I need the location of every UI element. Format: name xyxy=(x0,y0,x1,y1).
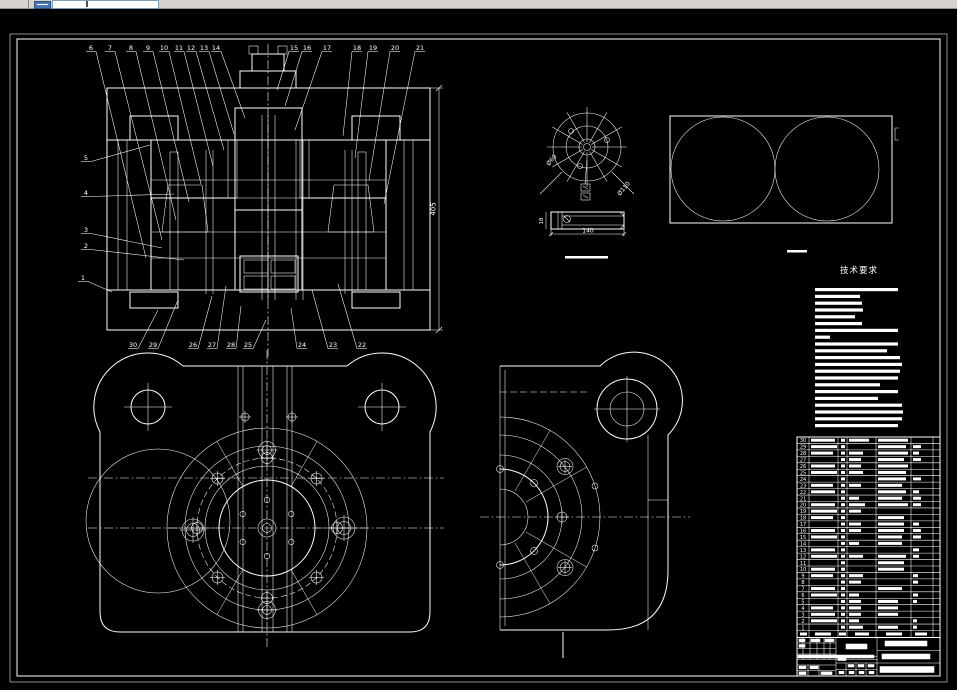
balloon-callout: 24 xyxy=(291,308,307,349)
tech-requirement-line xyxy=(815,308,863,311)
svg-text:25: 25 xyxy=(244,341,252,349)
bom-item-number: 9 xyxy=(801,574,804,580)
balloon-callout: 21 xyxy=(384,44,425,204)
bom-item-number: 13 xyxy=(800,548,806,554)
balloon-callout: 27 xyxy=(207,286,226,349)
bom-item-number: 22 xyxy=(800,490,806,496)
tech-requirement-line xyxy=(815,315,855,318)
svg-text:20: 20 xyxy=(391,44,399,52)
svg-text:1: 1 xyxy=(81,274,85,282)
title-block xyxy=(797,638,940,677)
bom-item-number: 2 xyxy=(801,619,804,625)
bom-item-number: 10 xyxy=(800,567,806,573)
bom-item-number: 8 xyxy=(801,580,804,586)
bom-item-number: 14 xyxy=(800,541,806,547)
balloon-callout: 29 xyxy=(148,300,178,349)
tech-requirement-line xyxy=(815,390,898,393)
tech-requirements: 技术要求 xyxy=(815,265,903,427)
half-plan-view xyxy=(400,352,690,658)
section-view: 405 xyxy=(107,44,443,360)
svg-text:29: 29 xyxy=(149,341,157,349)
dim-length-140: 140 xyxy=(582,228,594,235)
svg-text:22: 22 xyxy=(358,341,366,349)
bom-item-number: 5 xyxy=(801,599,804,605)
svg-text:4: 4 xyxy=(84,189,88,197)
svg-text:11: 11 xyxy=(175,44,183,52)
tech-requirements-lines xyxy=(815,288,903,427)
gear-detail-view: Ø60 Ø110 xyxy=(540,107,634,200)
bom-item-number: 4 xyxy=(801,606,804,612)
application-window: 405 678910111213141516171819202154321302… xyxy=(0,0,957,690)
svg-text:14: 14 xyxy=(212,44,220,52)
svg-text:19: 19 xyxy=(369,44,377,52)
bom-item-number: 17 xyxy=(800,522,806,528)
bom-item-number: 18 xyxy=(800,516,806,522)
tech-requirement-line xyxy=(815,295,860,298)
bom-item-number: 29 xyxy=(800,445,806,451)
drawing-canvas[interactable]: 405 678910111213141516171819202154321302… xyxy=(0,8,957,690)
bom-item-number: 21 xyxy=(800,496,806,502)
bom-item-number: 25 xyxy=(800,470,806,476)
bom-item-number: 20 xyxy=(800,503,806,509)
svg-text:15: 15 xyxy=(290,44,298,52)
bom-item-number: 19 xyxy=(800,509,806,515)
tech-requirement-line xyxy=(815,404,902,407)
bom-item-number: 3 xyxy=(801,612,804,618)
bom-item-number: 24 xyxy=(800,477,806,483)
balloon-callout: 16 xyxy=(285,44,312,106)
svg-text:26: 26 xyxy=(189,341,197,349)
bom-item-number: 1 xyxy=(801,625,804,631)
tech-requirement-line xyxy=(815,376,898,379)
svg-text:24: 24 xyxy=(298,341,306,349)
balloon-callout: 28 xyxy=(226,306,241,349)
tech-requirement-line xyxy=(815,356,900,359)
balloon-callout: 10 xyxy=(159,44,201,184)
bom-item-number: 7 xyxy=(801,587,804,593)
balloon-callout: 25 xyxy=(243,320,266,349)
svg-text:30: 30 xyxy=(129,341,137,349)
bolt-hole xyxy=(309,471,324,486)
plan-view-bottom-left xyxy=(86,350,444,648)
dimension-405: 405 xyxy=(430,85,444,333)
svg-text:8: 8 xyxy=(129,44,133,52)
svg-text:6: 6 xyxy=(89,44,93,52)
cylinder-detail-view: 140 18 xyxy=(539,212,626,236)
dim-overall-height: 405 xyxy=(430,202,438,215)
bom-item-number: 23 xyxy=(800,483,806,489)
bom-item-number: 28 xyxy=(800,451,806,457)
bolt-hole xyxy=(180,517,206,543)
tech-requirement-line xyxy=(815,397,878,400)
balloon-callout: 4 xyxy=(81,189,174,197)
svg-text:12: 12 xyxy=(187,44,195,52)
bom-item-number: 16 xyxy=(800,529,806,535)
dim-height-18: 18 xyxy=(539,217,545,224)
svg-text:16: 16 xyxy=(303,44,311,52)
dim-dia-60: Ø60 xyxy=(545,153,558,167)
svg-text:18: 18 xyxy=(353,44,361,52)
balloon-callout: 20 xyxy=(369,44,400,180)
balloon-callout: 3 xyxy=(81,226,162,248)
svg-text:9: 9 xyxy=(146,44,150,52)
bolt-hole xyxy=(210,570,225,585)
tech-requirement-line xyxy=(815,349,887,352)
tech-requirement-line xyxy=(815,302,862,305)
bom-item-number: 27 xyxy=(800,458,806,464)
balloon-callout: 5 xyxy=(81,145,150,162)
tech-requirement-line xyxy=(815,410,903,413)
balloon-callout: 2 xyxy=(81,242,184,260)
svg-text:23: 23 xyxy=(329,341,337,349)
svg-text:27: 27 xyxy=(208,341,216,349)
tech-requirement-line xyxy=(815,329,898,332)
svg-text:13: 13 xyxy=(200,44,208,52)
bom-item-number: 15 xyxy=(800,535,806,541)
tech-requirement-line xyxy=(815,383,880,386)
balloon-callout: 7 xyxy=(105,44,162,240)
tech-requirement-line xyxy=(815,417,902,420)
bom-item-number: 12 xyxy=(800,554,806,560)
bom-item-number: 6 xyxy=(801,593,804,599)
svg-text:2: 2 xyxy=(84,242,88,250)
svg-text:10: 10 xyxy=(160,44,168,52)
bom-table: 3029282726252423222120191817161514131211… xyxy=(797,437,940,638)
balloon-callout: 11 xyxy=(174,44,213,166)
bom-item-number: 26 xyxy=(800,464,806,470)
balloon-callout: 23 xyxy=(312,290,338,349)
bolt-hole xyxy=(239,411,251,423)
tech-requirement-line xyxy=(815,322,862,325)
tech-requirement-line xyxy=(815,424,898,427)
toolbar-separator-2 xyxy=(86,1,88,7)
balloon-callout: 13 xyxy=(199,44,234,134)
svg-text:7: 7 xyxy=(108,44,112,52)
bom-item-number: 30 xyxy=(800,438,806,444)
tech-requirement-line xyxy=(815,288,898,291)
toolbar-separator xyxy=(28,0,29,8)
svg-text:28: 28 xyxy=(227,341,235,349)
svg-text:21: 21 xyxy=(416,44,424,52)
svg-text:17: 17 xyxy=(323,44,331,52)
balloon-callout: 6 xyxy=(86,44,146,258)
svg-text:3: 3 xyxy=(84,226,88,234)
tech-requirement-line xyxy=(815,363,902,366)
tech-requirements-title: 技术要求 xyxy=(840,265,878,276)
tech-requirement-line xyxy=(815,342,898,345)
svg-text:5: 5 xyxy=(84,154,88,162)
tech-requirement-line xyxy=(815,370,900,373)
bom-item-number: 11 xyxy=(800,561,806,567)
cavity-layout-view xyxy=(670,116,899,223)
dim-dia-110: Ø110 xyxy=(616,180,632,197)
bolt-hole xyxy=(309,570,324,585)
tech-requirement-line xyxy=(815,336,830,339)
sheet-frame xyxy=(10,34,947,682)
balloon-callout: 19 xyxy=(355,44,378,158)
